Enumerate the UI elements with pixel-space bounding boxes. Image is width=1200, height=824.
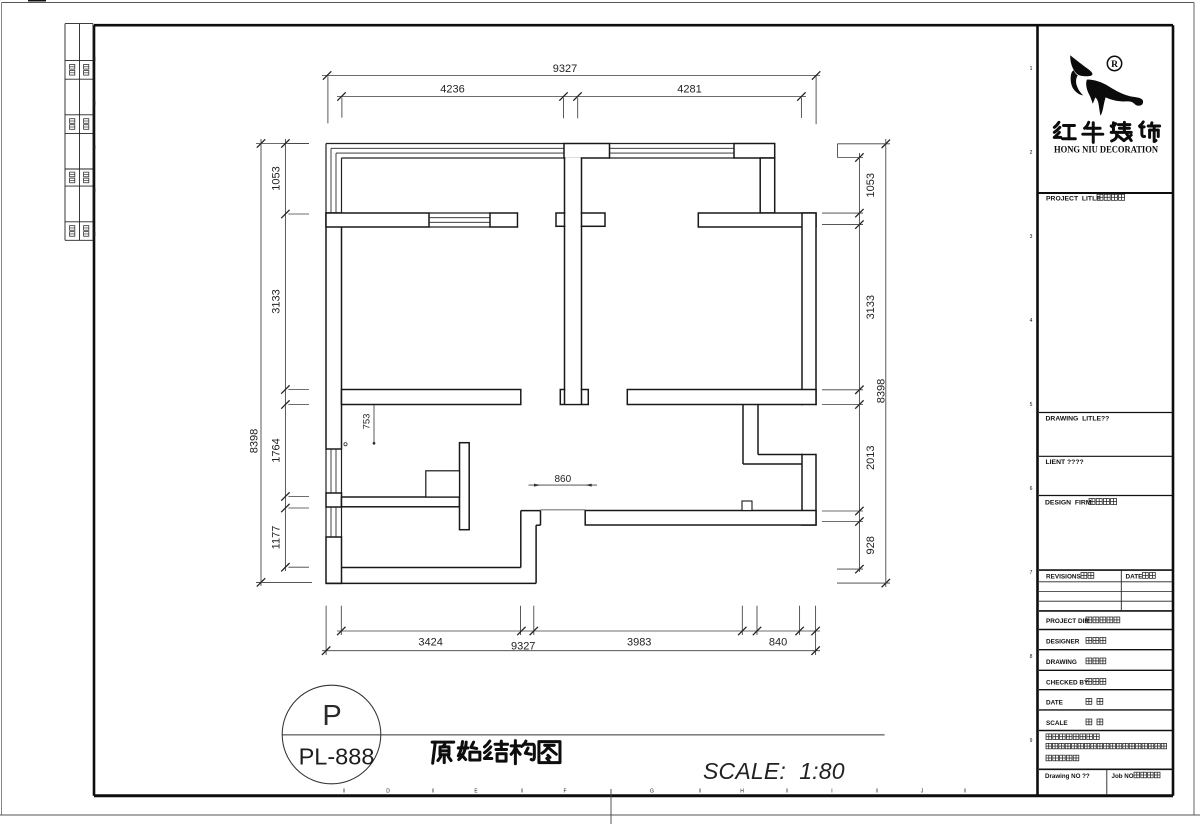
svg-text:1764: 1764: [271, 438, 283, 462]
svg-text:3424: 3424: [418, 637, 442, 649]
svg-text:3: 3: [1030, 234, 1033, 240]
svg-text:8398: 8398: [876, 379, 888, 403]
svg-text:1053: 1053: [271, 166, 283, 190]
svg-text:Job NO: Job NO: [1112, 773, 1134, 780]
svg-text:I: I: [831, 789, 832, 795]
svg-text:CHECKED BY: CHECKED BY: [1046, 679, 1089, 686]
svg-text:2: 2: [1030, 150, 1033, 156]
svg-text:2013: 2013: [865, 446, 877, 470]
svg-text:DRAWING: DRAWING: [1046, 659, 1077, 666]
svg-text:DATE: DATE: [1046, 699, 1064, 706]
svg-text:840: 840: [769, 637, 787, 649]
svg-text:860: 860: [554, 474, 571, 485]
svg-text:DESIGNER: DESIGNER: [1046, 638, 1080, 645]
svg-text:4281: 4281: [677, 84, 701, 96]
svg-text:PL-888: PL-888: [299, 744, 375, 770]
svg-text:9327: 9327: [553, 63, 577, 75]
svg-text:3133: 3133: [271, 289, 283, 313]
svg-text:G: G: [650, 789, 654, 795]
svg-text:PROJECT LITLE: PROJECT LITLE: [1046, 195, 1101, 202]
svg-text:8: 8: [1030, 654, 1033, 660]
svg-text:DESIGN FIRM: DESIGN FIRM: [1045, 500, 1092, 507]
svg-text:R: R: [1111, 60, 1118, 70]
svg-text:7: 7: [1030, 570, 1033, 576]
svg-text:D: D: [386, 789, 390, 795]
svg-text:8398: 8398: [249, 429, 261, 453]
svg-text:3983: 3983: [627, 637, 651, 649]
svg-text:1177: 1177: [271, 526, 283, 550]
svg-text:Drawing NO ??: Drawing NO ??: [1045, 773, 1090, 780]
svg-text:PROJECT DIR: PROJECT DIR: [1046, 618, 1089, 625]
svg-text:6: 6: [1030, 486, 1033, 492]
svg-text:DATE: DATE: [1126, 573, 1144, 580]
svg-text:9: 9: [1030, 738, 1033, 744]
svg-text:SCALE: SCALE: [1046, 720, 1068, 727]
svg-text:LIENT ????: LIENT ????: [1046, 459, 1084, 466]
svg-text:F: F: [563, 789, 566, 795]
svg-text:4: 4: [1030, 318, 1033, 324]
svg-text:DRAWING LITLE??: DRAWING LITLE??: [1046, 416, 1110, 423]
svg-text:SCALE: 1:80: SCALE: 1:80: [703, 758, 845, 784]
svg-text:1053: 1053: [865, 173, 877, 197]
svg-text:1: 1: [1030, 66, 1033, 72]
svg-text:REVISIONS: REVISIONS: [1046, 573, 1082, 580]
svg-text:H: H: [740, 789, 744, 795]
svg-text:928: 928: [865, 536, 877, 554]
svg-text:5: 5: [1030, 402, 1033, 408]
svg-text:753: 753: [362, 414, 373, 430]
svg-text:4236: 4236: [440, 84, 464, 96]
svg-text:HONG NIU DECORATION: HONG NIU DECORATION: [1054, 145, 1158, 155]
svg-text:P: P: [322, 700, 341, 732]
svg-text:3133: 3133: [865, 295, 877, 319]
